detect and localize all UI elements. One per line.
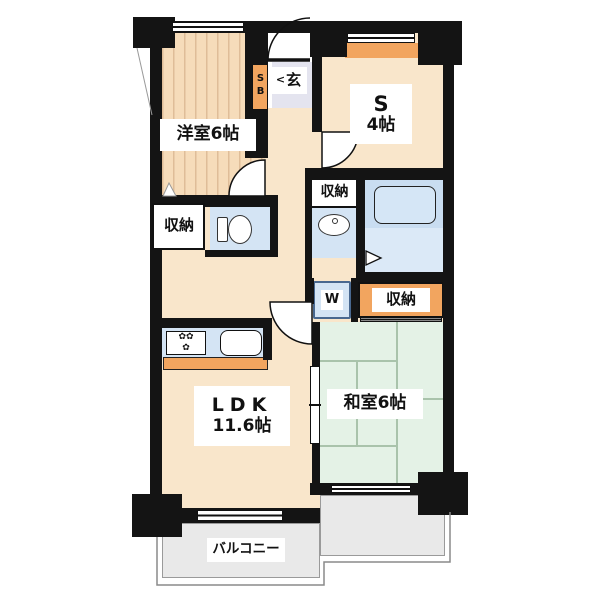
western-room-label: 洋室6帖 (160, 119, 256, 151)
service-room-name: S (373, 92, 388, 116)
kitchen-sink (220, 330, 262, 356)
bathroom-floor-lower (365, 228, 444, 272)
wall-toilet-bottom (205, 250, 278, 257)
western-room-floor-lower (162, 158, 265, 198)
ldk-label: LDK 11.6帖 (194, 386, 290, 446)
service-room-sill (345, 43, 418, 58)
service-room-window (347, 33, 415, 43)
storage-east-label: 収納 (372, 288, 430, 312)
wall-kitchen-top (150, 318, 272, 328)
stove-burner-icon: ✿ (167, 344, 205, 353)
wall-toilet-right (270, 207, 278, 252)
western-room-window (172, 22, 244, 32)
entrance-text: 玄 (286, 72, 301, 89)
sliding-door-joint (309, 404, 321, 406)
wall-western-right-b (245, 65, 252, 111)
wall-below-service (305, 168, 444, 180)
pillar-entrance (310, 21, 347, 57)
tatami-line (320, 445, 398, 447)
stove: ✿ ✿ ✿ (166, 331, 206, 355)
balcony-label: バルコニー (207, 538, 285, 562)
ldk-balcony-window (197, 510, 283, 521)
stove-burner-icon: ✿ (178, 333, 186, 342)
washbasin-faucet (332, 218, 338, 224)
bathtub (374, 186, 436, 224)
ldk-name: LDK (212, 395, 273, 417)
service-room-label: S 4帖 (350, 84, 412, 144)
wall-washer-left (305, 278, 314, 304)
ldk-size: 11.6帖 (213, 417, 272, 437)
floor-plan: ✿ ✿ ✿ (0, 0, 600, 600)
entrance-arrow-icon: < (276, 74, 285, 87)
toilet-tank (217, 217, 228, 242)
wall-hall-right (305, 180, 312, 278)
pillar-top-right (418, 21, 462, 65)
wall-washer-right (351, 278, 358, 322)
wall-bath-bottom (356, 272, 454, 282)
wall-western-right-a (245, 21, 268, 65)
japanese-room-window (331, 485, 411, 493)
pillar-top-left (133, 17, 175, 48)
storage-east-window (360, 317, 442, 322)
sliding-door (310, 366, 320, 444)
pillar-bottom-right (418, 472, 468, 515)
washer-label: W (321, 290, 343, 310)
wall-left (150, 21, 162, 523)
wall-japanese-left-upper (312, 322, 320, 366)
tatami-line (320, 360, 398, 362)
pillar-bottom-left (132, 494, 182, 537)
wall-kitchen-right (263, 328, 272, 360)
kitchen-counter-front (163, 357, 268, 370)
entrance-label: < 玄 (270, 67, 307, 94)
storage-west-label: 収納 (156, 211, 202, 241)
wall-japanese-left-lower (312, 444, 320, 483)
stove-burner-icon: ✿ (186, 333, 194, 342)
wall-entrance-right (312, 57, 322, 132)
service-room-size: 4帖 (367, 116, 396, 136)
shoe-box-label: SB (254, 72, 267, 104)
wall-bath-left (356, 180, 365, 272)
toilet-bowl (228, 215, 252, 244)
storage-hall-label: 収納 (315, 180, 354, 205)
japanese-room-label: 和室6帖 (327, 389, 423, 419)
wall-right (443, 21, 454, 473)
